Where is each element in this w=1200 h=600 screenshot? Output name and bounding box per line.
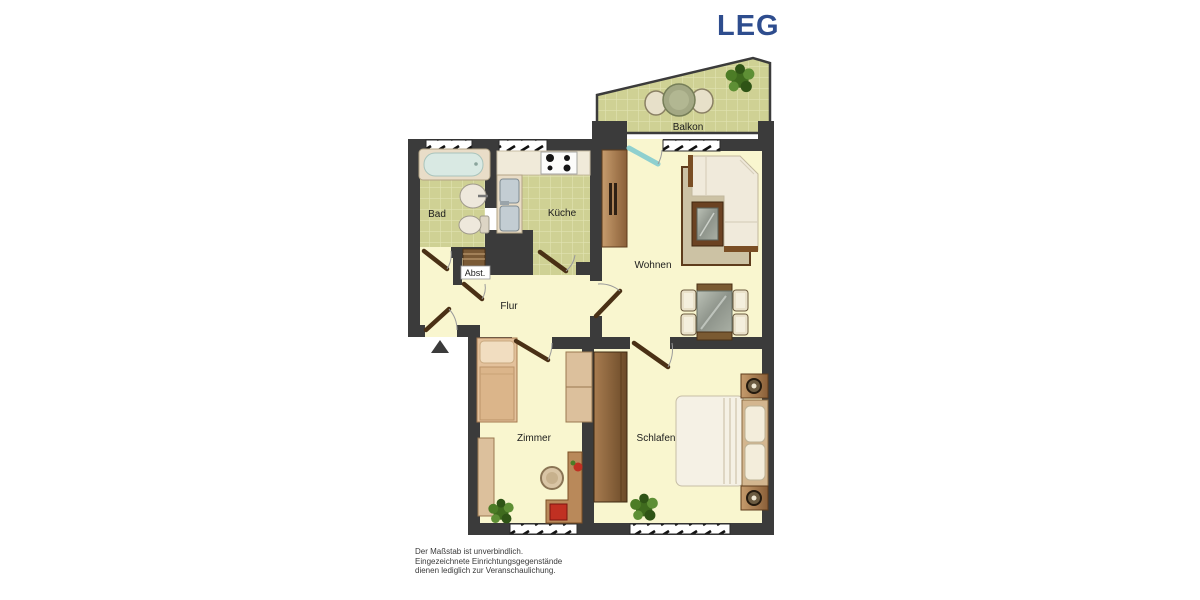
storage-shelf [463,249,485,266]
living-cabinet-handle-left [609,183,612,215]
wall-central-upper [590,151,602,281]
office-chair-seat [546,472,558,484]
balcony-table-top [669,90,689,110]
double-bed-duvet [676,396,744,486]
single-bed-pillow [480,341,514,363]
bathtub-drain [474,162,478,166]
bed-pillow-bottom [745,444,765,480]
floorplan-page: LEG [0,0,1200,600]
lamp-top-bulb [752,384,757,389]
room-label-schlafen: Schlafen [637,433,676,444]
bedroom-wardrobe [594,352,627,502]
kitchen-faucet [500,201,509,205]
toilet [459,216,481,234]
bathtub-basin [424,153,483,176]
kueche-window [499,140,547,151]
entrance-arrow-icon [431,340,449,353]
laptop [550,504,567,520]
room-label-balkon: Balkon [673,122,704,133]
room-label-flur: Flur [500,301,518,312]
room-label-zimmer: Zimmer [517,433,552,444]
wall-balcony-left [592,121,627,141]
chair-cushion [684,317,693,332]
room-label-kueche: Küche [548,208,577,219]
disclaimer-line-1: Der Maßstab ist unverbindlich. [415,547,562,557]
wall-core-mass [485,230,533,275]
wall-kueche-door-right [576,262,602,275]
single-bed-blanket [480,367,514,420]
bed-pillow-top [745,406,765,442]
chair-cushion [736,317,745,332]
scale-disclaimer: Der Maßstab ist unverbindlich. Eingezeic… [415,547,562,576]
floorplan-drawing: Balkon Bad Küche Wohnen Abst. Flur Zimme… [0,0,1200,600]
kitchen-sink-basin-1 [500,179,519,203]
disclaimer-line-3: dienen lediglich zur Veranschaulichung. [415,566,562,576]
sofa-trim-left [688,155,693,187]
wall-entrance-left [408,325,425,337]
zimmer-window [510,524,577,534]
wohnen-window [663,140,720,151]
desk-flower-leaf [571,461,576,466]
room-label-wohnen: Wohnen [634,260,671,271]
room-label-bad: Bad [428,209,446,220]
dining-table-cap-bottom [697,332,732,340]
sofa-trim-bottom [724,246,758,252]
lamp-bottom-bulb [752,496,757,501]
wall-balcony-right [758,121,774,141]
room-label-abst: Abst. [465,268,486,278]
stove [541,152,577,174]
schlafen-window [630,524,730,534]
burner-2 [564,155,570,161]
kitchen-sink-basin-2 [500,206,519,231]
chair-cushion [736,293,745,308]
living-cabinet-handle-right [614,183,617,215]
disclaimer-line-2: Eingezeichnete Einrichtungsgegenstände [415,557,562,567]
burner-3 [547,165,553,171]
wall-left-upper [408,139,420,337]
burner-4 [563,164,571,172]
burner-1 [546,154,554,162]
chair-cushion [684,293,693,308]
